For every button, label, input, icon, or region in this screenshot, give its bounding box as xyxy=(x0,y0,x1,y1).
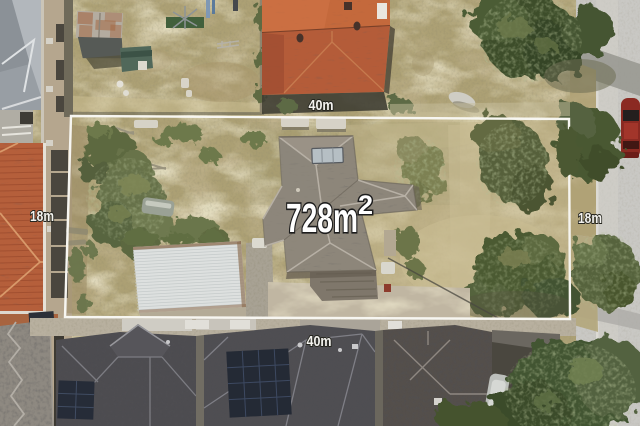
svg-text:2: 2 xyxy=(358,190,373,220)
svg-text:18m: 18m xyxy=(578,210,602,227)
svg-text:728m: 728m xyxy=(286,195,358,241)
svg-text:18m: 18m xyxy=(30,208,54,225)
svg-text:40m: 40m xyxy=(309,97,334,114)
svg-text:40m: 40m xyxy=(307,333,332,350)
